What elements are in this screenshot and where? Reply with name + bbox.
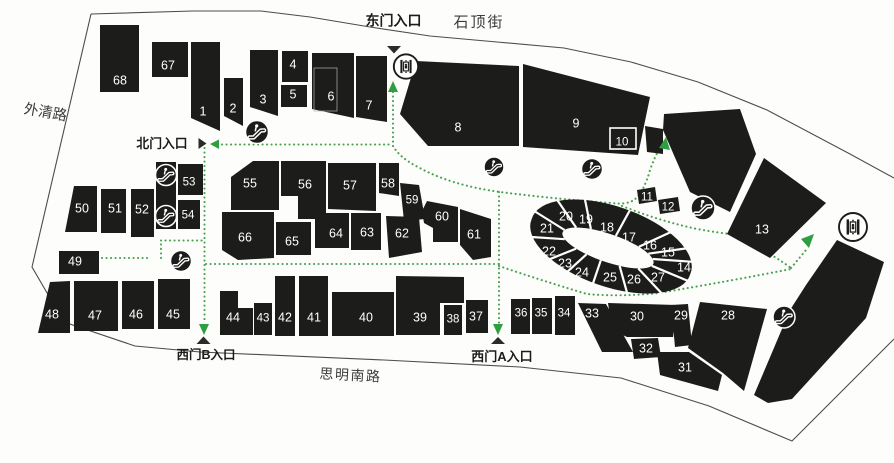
svg-text:55: 55 (243, 176, 257, 190)
svg-text:14: 14 (677, 260, 691, 274)
svg-text:50: 50 (75, 201, 89, 215)
svg-text:44: 44 (226, 310, 240, 324)
svg-text:53: 53 (183, 176, 196, 188)
svg-text:59: 59 (406, 194, 419, 206)
svg-text:35: 35 (535, 307, 548, 319)
svg-text:15: 15 (661, 245, 675, 259)
svg-text:38: 38 (447, 313, 460, 325)
svg-text:56: 56 (298, 177, 312, 191)
svg-text:47: 47 (88, 308, 102, 322)
svg-text:5: 5 (290, 87, 297, 101)
svg-text:思明南路: 思明南路 (319, 365, 382, 384)
svg-text:6: 6 (328, 89, 335, 103)
svg-text:61: 61 (467, 227, 481, 241)
svg-text:27: 27 (651, 270, 665, 284)
svg-text:16: 16 (643, 238, 657, 252)
svg-text:34: 34 (558, 307, 571, 319)
svg-text:东门入口: 东门入口 (366, 13, 422, 29)
svg-text:30: 30 (630, 309, 644, 323)
svg-text:13: 13 (755, 222, 769, 236)
svg-text:39: 39 (413, 310, 427, 324)
svg-text:60: 60 (435, 209, 449, 223)
svg-text:18: 18 (600, 220, 614, 234)
svg-text:26: 26 (627, 272, 641, 286)
svg-text:19: 19 (579, 212, 593, 226)
svg-text:54: 54 (182, 209, 195, 221)
svg-text:9: 9 (573, 116, 580, 130)
svg-text:32: 32 (639, 341, 653, 355)
svg-text:西门A入口: 西门A入口 (471, 349, 532, 364)
svg-text:11: 11 (641, 191, 653, 203)
svg-text:3: 3 (260, 92, 267, 106)
svg-text:52: 52 (135, 202, 149, 216)
svg-text:37: 37 (469, 309, 483, 323)
svg-text:33: 33 (585, 306, 599, 320)
svg-text:40: 40 (359, 310, 373, 324)
svg-text:67: 67 (161, 58, 175, 72)
svg-text:2: 2 (230, 101, 237, 115)
svg-text:12: 12 (662, 201, 675, 213)
svg-text:20: 20 (559, 209, 573, 223)
svg-text:45: 45 (166, 307, 180, 321)
svg-text:石顶街: 石顶街 (453, 14, 504, 31)
svg-text:41: 41 (307, 310, 321, 324)
svg-text:48: 48 (45, 307, 59, 321)
svg-text:28: 28 (721, 308, 735, 322)
svg-text:36: 36 (515, 307, 528, 319)
svg-text:北门入口: 北门入口 (136, 136, 187, 151)
svg-text:64: 64 (329, 226, 343, 240)
svg-text:51: 51 (108, 201, 122, 215)
svg-text:43: 43 (257, 312, 270, 324)
svg-text:63: 63 (360, 225, 374, 239)
svg-text:68: 68 (113, 73, 127, 87)
svg-text:4: 4 (290, 57, 297, 71)
svg-text:49: 49 (68, 254, 82, 268)
svg-text:21: 21 (540, 221, 554, 235)
svg-text:7: 7 (366, 98, 373, 112)
svg-text:62: 62 (395, 226, 409, 240)
svg-text:25: 25 (603, 270, 617, 284)
svg-text:31: 31 (678, 360, 692, 374)
svg-text:1: 1 (200, 104, 207, 118)
svg-text:23: 23 (558, 256, 572, 270)
svg-text:24: 24 (575, 265, 589, 279)
svg-text:46: 46 (129, 307, 143, 321)
svg-text:8: 8 (455, 120, 462, 134)
svg-text:42: 42 (278, 310, 292, 324)
svg-text:10: 10 (616, 136, 629, 148)
svg-text:17: 17 (622, 230, 636, 244)
svg-text:22: 22 (542, 244, 556, 258)
svg-text:29: 29 (674, 308, 688, 322)
svg-text:西门B入口: 西门B入口 (176, 347, 235, 362)
svg-text:58: 58 (381, 176, 395, 190)
svg-text:66: 66 (238, 230, 252, 244)
svg-text:65: 65 (285, 234, 299, 248)
svg-text:57: 57 (343, 178, 357, 192)
